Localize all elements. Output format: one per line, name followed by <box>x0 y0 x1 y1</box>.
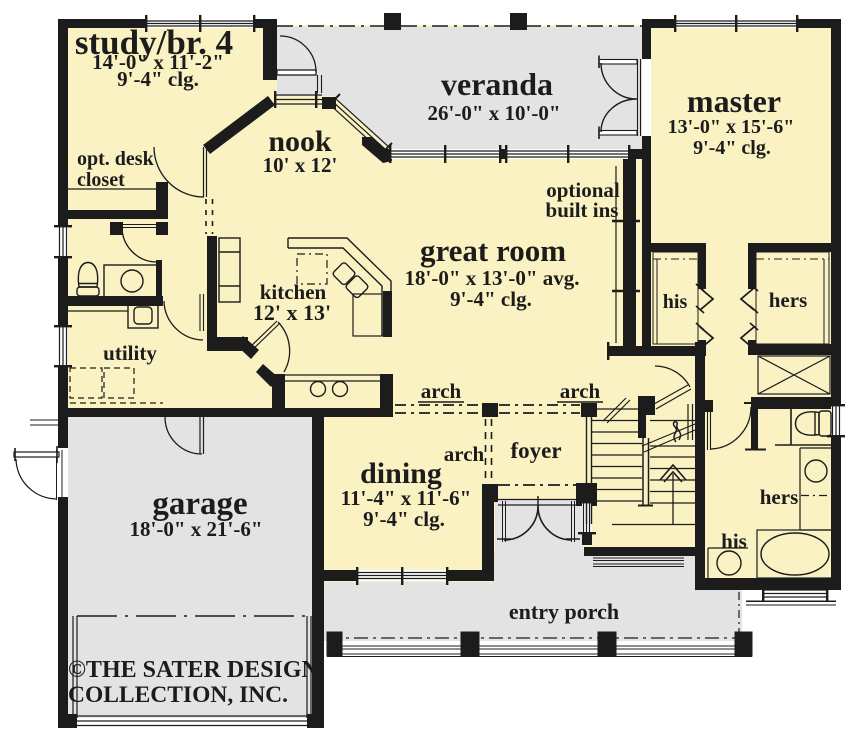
svg-text:entry porch: entry porch <box>509 599 619 624</box>
svg-text:9'-4" clg.: 9'-4" clg. <box>117 67 199 91</box>
svg-text:closet: closet <box>77 169 125 191</box>
svg-text:10' x 12': 10' x 12' <box>263 153 338 177</box>
svg-text:hers: hers <box>769 288 808 312</box>
svg-text:his: his <box>663 291 688 313</box>
svg-text:master: master <box>687 83 781 119</box>
svg-text:foyer: foyer <box>510 438 561 463</box>
svg-text:veranda: veranda <box>441 66 553 102</box>
svg-text:great room: great room <box>420 233 566 268</box>
svg-text:arch: arch <box>421 379 462 403</box>
svg-text:arch: arch <box>560 379 601 403</box>
svg-text:9'-4" clg.: 9'-4" clg. <box>693 137 771 159</box>
svg-text:26'-0" x 10'-0": 26'-0" x 10'-0" <box>428 101 561 125</box>
svg-text:utility: utility <box>103 341 157 365</box>
svg-text:built ins: built ins <box>546 198 619 222</box>
svg-text:opt. desk: opt. desk <box>77 148 155 170</box>
svg-text:COLLECTION, INC.: COLLECTION, INC. <box>68 682 288 708</box>
svg-text:arch: arch <box>444 442 485 466</box>
svg-text:12' x 13': 12' x 13' <box>253 300 331 325</box>
svg-text:9'-4" clg.: 9'-4" clg. <box>450 287 532 311</box>
svg-text:his: his <box>721 529 747 553</box>
svg-text:©THE SATER DESIGN: ©THE SATER DESIGN <box>68 657 320 683</box>
svg-text:hers: hers <box>760 485 799 509</box>
svg-text:18'-0" x 21'-6": 18'-0" x 21'-6" <box>130 517 263 541</box>
svg-text:13'-0" x 15'-6": 13'-0" x 15'-6" <box>668 116 795 138</box>
svg-text:9'-4" clg.: 9'-4" clg. <box>363 507 445 531</box>
